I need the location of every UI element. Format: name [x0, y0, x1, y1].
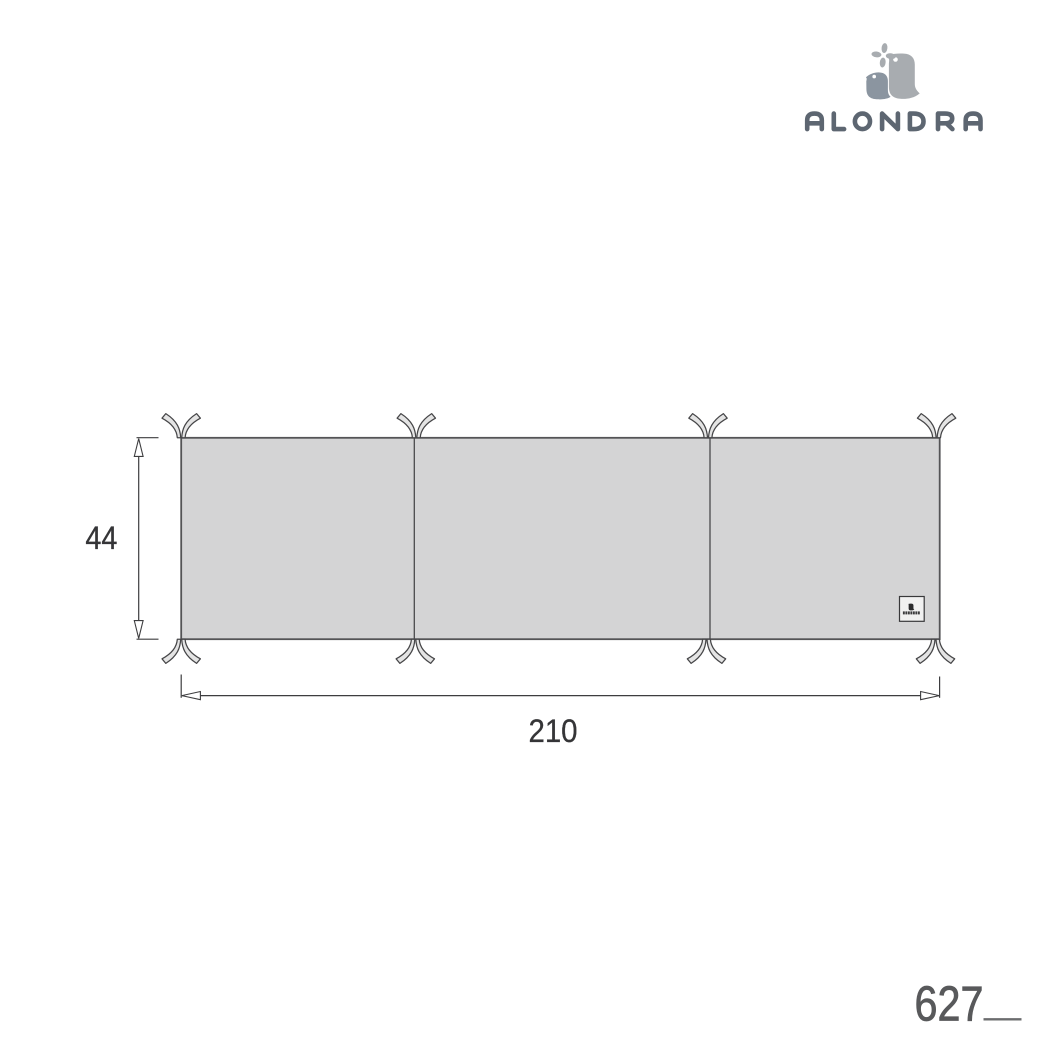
svg-text:44: 44 — [85, 520, 117, 556]
svg-text:210: 210 — [528, 713, 577, 749]
svg-text:627: 627 — [915, 976, 984, 1031]
